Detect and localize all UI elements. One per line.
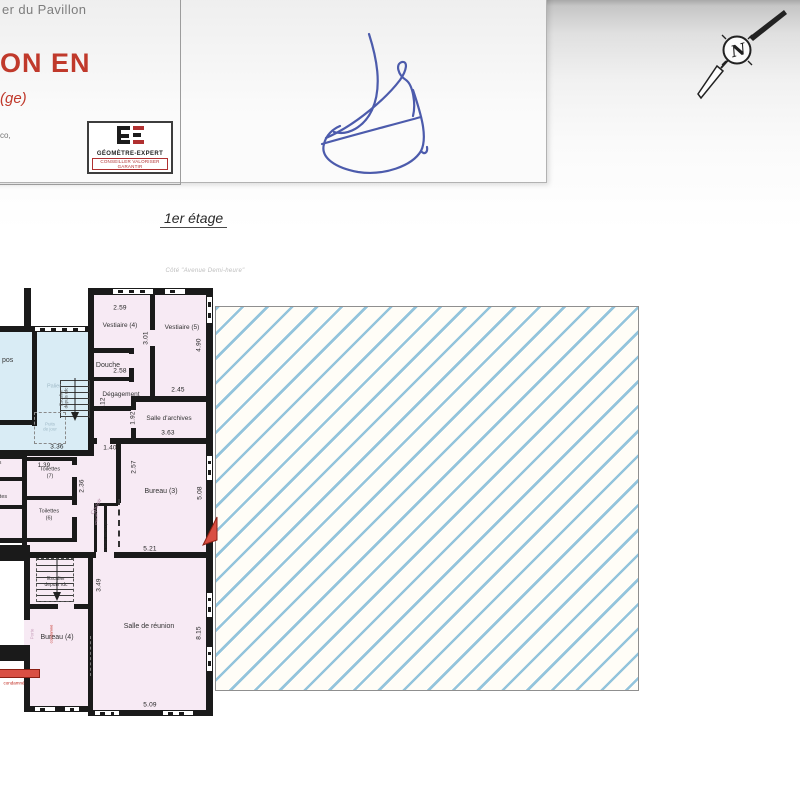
geometre-expert-logo-icon	[115, 125, 145, 145]
dashed-partition	[118, 499, 120, 547]
room-label-reunion: Salle de réunion	[124, 623, 175, 631]
geometre-expert-logo: GÉOMÈTRE-EXPERT CONSEILLER VALORISER GAR…	[87, 121, 173, 174]
signature	[300, 20, 450, 205]
dim-bureau3-height: 5.08	[197, 486, 204, 499]
feature-label-armoire: Armoire électrique	[104, 520, 109, 552]
wall	[27, 496, 76, 500]
dim-v5-width: 2.45	[171, 387, 184, 394]
wall	[22, 455, 27, 545]
room-label-bureau3: Bureau (3)	[144, 488, 177, 496]
room-fill	[94, 440, 207, 554]
wall	[0, 505, 27, 509]
wall	[27, 457, 76, 461]
feature-label-placard: Placard	[95, 511, 100, 525]
entrance-arrow-icon	[202, 514, 220, 550]
title-block-subtitle: (ge)	[0, 90, 27, 107]
logo-tagline: CONSEILLER VALORISER GARANTIR	[92, 158, 168, 170]
room-label-vestiaire4: Vestiaire (4)	[103, 322, 138, 330]
dim-v4-height: 3.01	[143, 331, 150, 344]
dim-bureau3-left: 2.57	[131, 460, 138, 473]
door-opening	[96, 552, 114, 558]
dim-reunion-height: 8.15	[196, 626, 203, 639]
wall	[88, 377, 132, 381]
dim-reunion-width: 5.09	[143, 702, 156, 709]
door-opening	[72, 465, 77, 477]
dim-archives-left: 1.92	[130, 411, 137, 424]
condemned-door-label: condamné	[3, 680, 24, 685]
feature-label-stairs-down: Escalier depuis rdc	[44, 576, 67, 588]
wall	[0, 455, 27, 459]
room-fill	[0, 459, 24, 541]
wall	[131, 396, 206, 402]
wall	[88, 288, 94, 455]
dashed-partition	[90, 636, 91, 676]
scanned-floorplan-page: er du Pavillon ON EN (ge) co, GÉOMÈTRE-E…	[0, 0, 800, 786]
wall	[0, 538, 27, 543]
window	[34, 706, 56, 712]
wall	[24, 288, 31, 328]
dim-v4-width: 2.59	[113, 305, 126, 312]
street-note: Côté "Avenue Demi-heure"	[165, 268, 244, 274]
room-label-vestiaire5: Vestiaire (5)	[165, 324, 200, 332]
wall	[88, 556, 93, 712]
wall	[24, 552, 30, 622]
title-block-smalltext: co,	[0, 131, 11, 140]
window	[112, 288, 154, 295]
wall	[88, 348, 134, 353]
door-opening	[150, 330, 155, 346]
condemned-door-marker	[0, 669, 40, 678]
wall	[0, 645, 26, 661]
dim-v5-height: 4.90	[196, 338, 203, 351]
wall	[150, 294, 155, 402]
hatched-zone	[215, 306, 639, 691]
dim-stairs-height: 3.49	[96, 578, 103, 591]
wall	[24, 604, 90, 609]
room-label-archives: Salle d'archives	[146, 415, 191, 423]
window	[206, 455, 213, 481]
wall	[27, 538, 76, 542]
fragment-left-b: lettes	[0, 494, 7, 500]
room-label-toilettes6: Toilettes (6)	[39, 508, 59, 521]
feature-label-stairs-up: Escalier depuis rdc	[59, 388, 70, 409]
door-opening	[129, 354, 134, 368]
window	[206, 646, 213, 672]
feature-label-condamne: condamné	[50, 625, 55, 644]
window	[162, 710, 194, 716]
wall	[0, 420, 37, 425]
door-opening	[72, 505, 77, 517]
north-arrow-icon: N	[693, 6, 799, 108]
fragment-left-a: tes	[0, 460, 1, 466]
wall	[32, 326, 37, 426]
dim-archives-width: 3.63	[161, 430, 174, 437]
wall	[88, 406, 135, 411]
window	[34, 326, 86, 332]
dim-bureau3-width: 5.21	[143, 546, 156, 553]
dim-palier-width: 3.36	[50, 444, 63, 451]
fragment-repos: pos	[2, 357, 13, 364]
dim-douche-width: 2.58	[113, 368, 126, 375]
door-opening	[97, 438, 110, 444]
feature-label-porte: Porte	[29, 629, 34, 640]
title-block-header: er du Pavillon	[2, 2, 86, 17]
window	[94, 710, 120, 716]
dim-toilettes-height: 2.36	[79, 479, 86, 492]
wall	[0, 477, 27, 481]
door-opening	[58, 604, 74, 609]
window	[206, 592, 213, 618]
feature-label-puits: Puits de jour	[43, 422, 57, 433]
room-label-bureau4: Bureau (4)	[40, 634, 73, 642]
window	[206, 296, 213, 324]
logo-name: GÉOMÈTRE-EXPERT	[89, 151, 171, 157]
dim-toilettes7-width: 1.39	[38, 463, 50, 469]
window	[64, 706, 80, 712]
room-label-degagement: Dégagement	[102, 391, 139, 399]
wall	[116, 443, 121, 503]
title-block-title: ON EN	[0, 48, 91, 79]
floor-label: 1er étage	[160, 210, 227, 228]
dim-degagement-height: 3.12	[100, 397, 107, 410]
dim-opening-width: 1.40	[103, 445, 116, 452]
window	[164, 288, 186, 295]
stairs-arrow-icon	[70, 378, 80, 422]
